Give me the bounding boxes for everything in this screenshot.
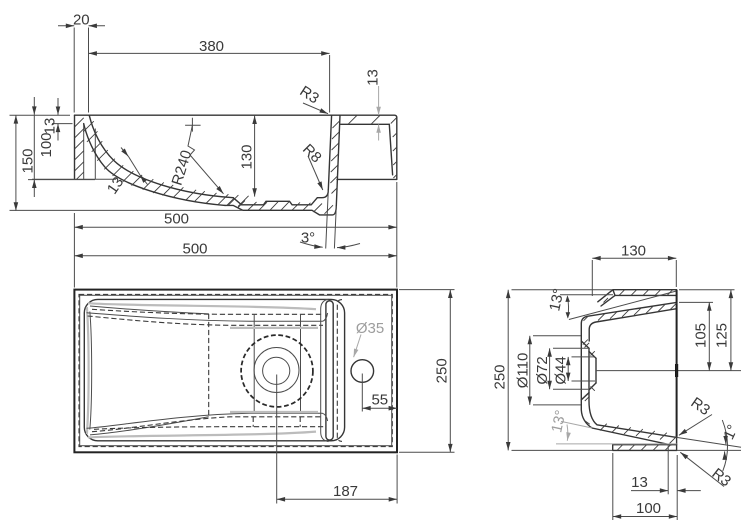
svg-text:125: 125	[713, 323, 730, 348]
svg-text:187: 187	[333, 483, 358, 500]
svg-text:Ø110: Ø110	[514, 353, 531, 389]
svg-text:R3: R3	[297, 83, 322, 108]
svg-text:250: 250	[433, 358, 450, 383]
svg-text:R8: R8	[299, 141, 325, 167]
svg-text:13: 13	[364, 69, 381, 86]
svg-text:Ø72: Ø72	[534, 356, 551, 384]
svg-text:Ø35: Ø35	[356, 320, 384, 337]
svg-text:13: 13	[41, 118, 58, 135]
svg-text:R240: R240	[169, 148, 196, 187]
svg-text:13°: 13°	[546, 287, 567, 313]
svg-text:55: 55	[371, 392, 388, 409]
svg-text:130: 130	[621, 243, 646, 260]
svg-text:20: 20	[73, 11, 90, 28]
svg-text:R3: R3	[709, 465, 735, 490]
svg-text:3°: 3°	[301, 230, 315, 247]
svg-text:1°: 1°	[720, 422, 741, 442]
svg-text:500: 500	[164, 211, 189, 228]
svg-text:130: 130	[238, 144, 255, 169]
svg-text:R3: R3	[688, 394, 713, 419]
svg-text:13°: 13°	[548, 409, 569, 435]
svg-text:100: 100	[38, 132, 55, 157]
svg-text:13: 13	[631, 474, 648, 491]
svg-text:13: 13	[104, 174, 127, 197]
svg-text:Ø44: Ø44	[552, 356, 569, 384]
svg-text:250: 250	[491, 364, 508, 389]
svg-text:380: 380	[199, 38, 224, 55]
svg-text:100: 100	[636, 500, 661, 517]
svg-text:105: 105	[692, 323, 709, 348]
svg-text:500: 500	[182, 240, 207, 257]
